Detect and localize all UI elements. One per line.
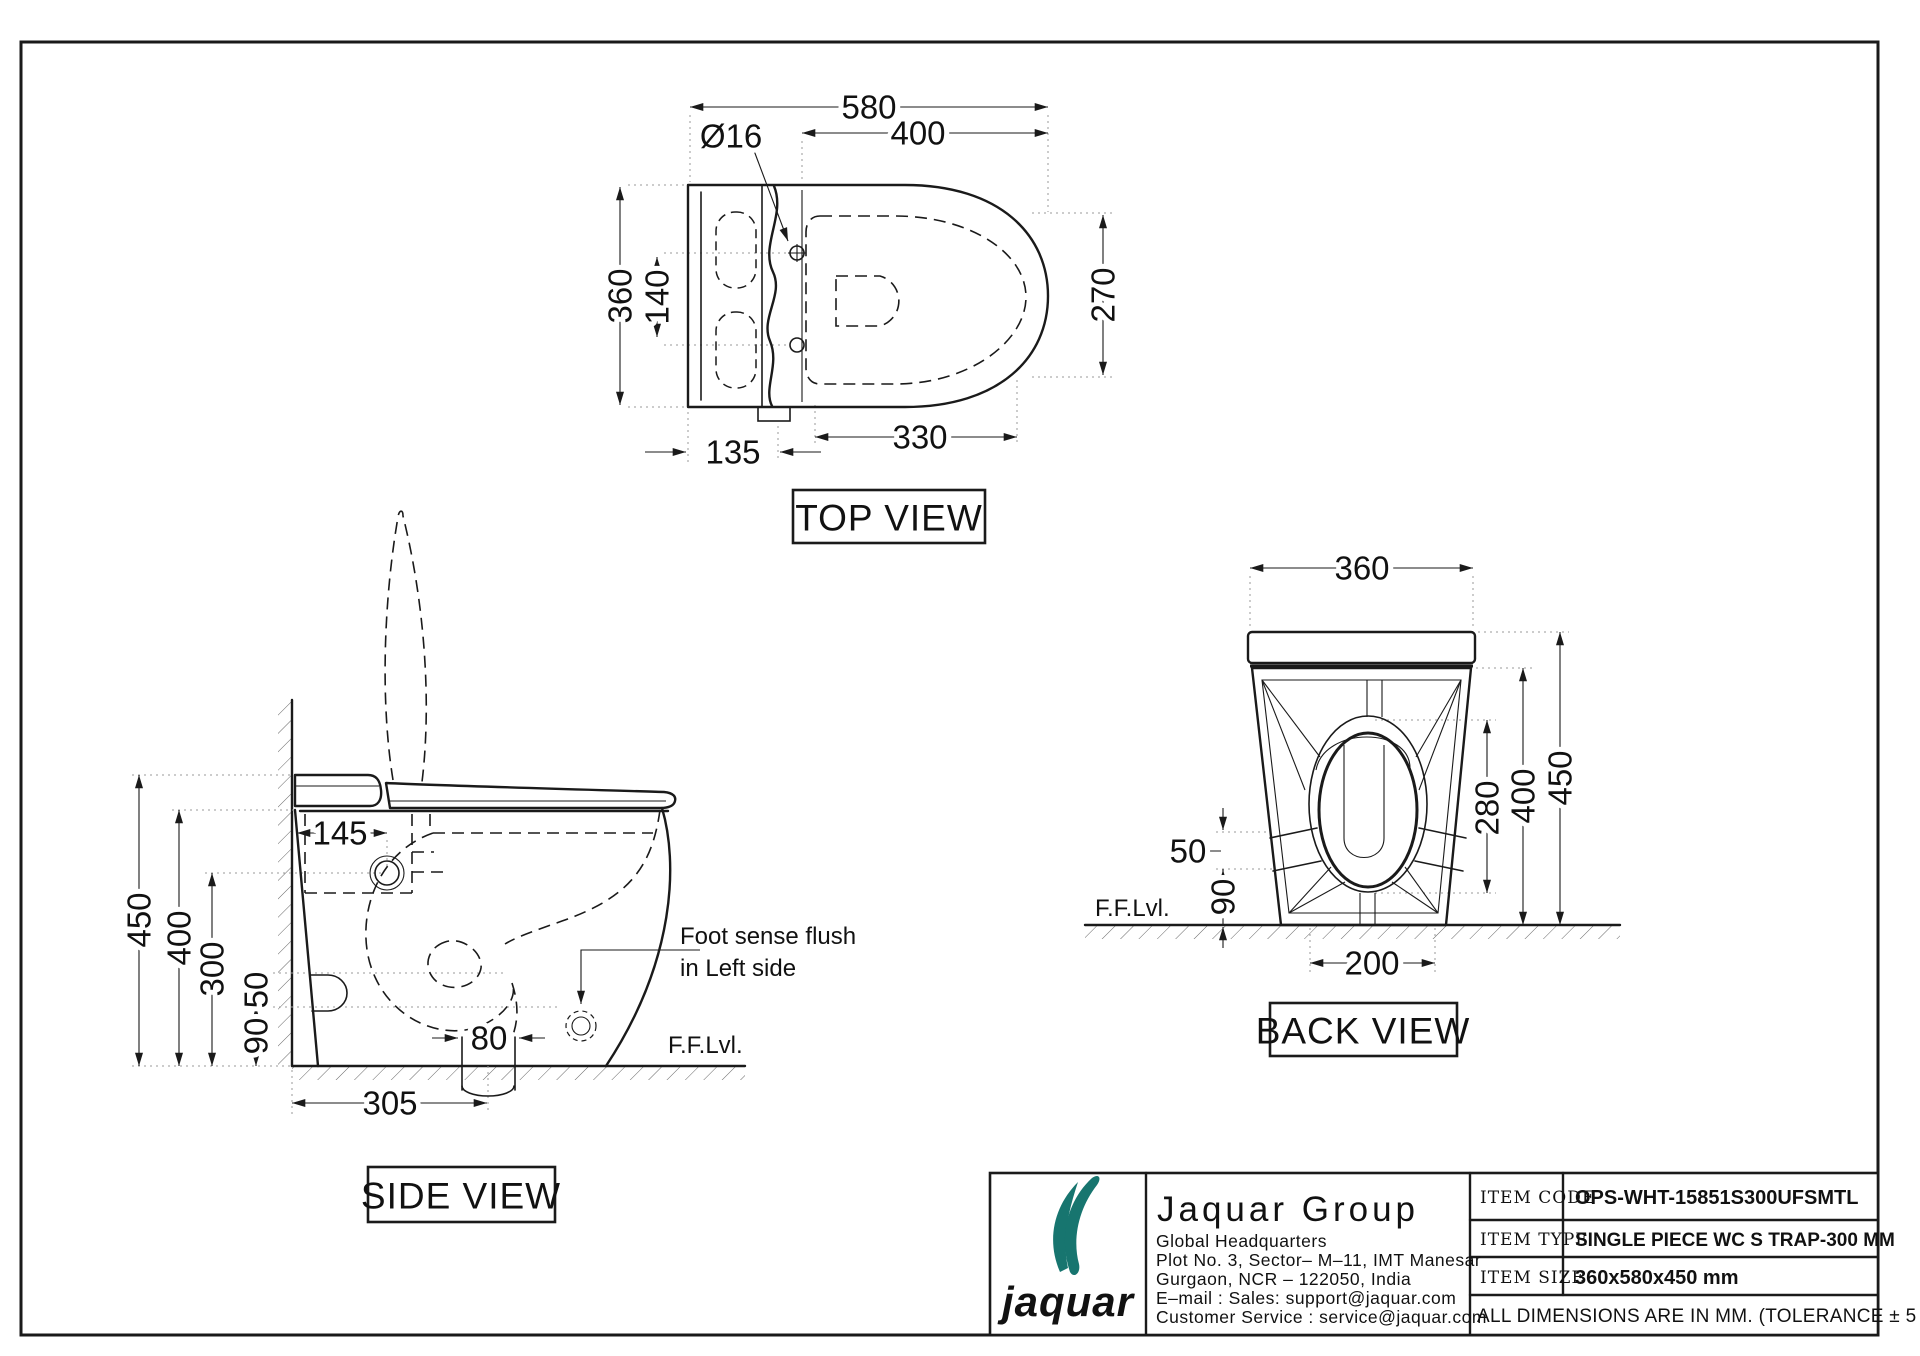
foot-sensor-inner <box>572 1017 590 1035</box>
dim-top-bowl-length: 330 <box>892 419 947 456</box>
dim-back-foot-width: 200 <box>1344 945 1399 982</box>
side-view-label: SIDE VIEW <box>361 1176 561 1217</box>
item-type-value: SINGLE PIECE WC S TRAP-300 MM <box>1575 1230 1895 1251</box>
sheet-border <box>21 42 1878 1335</box>
floor-level-label-back: F.F.Lvl. <box>1095 895 1170 922</box>
side-view-wall-floor <box>278 700 745 1080</box>
tank-slot-1 <box>716 212 756 288</box>
dim-back-body-height: 400 <box>1505 768 1542 823</box>
tank-lid-back <box>1248 632 1475 663</box>
back-view-dimension-lines <box>1204 568 1560 963</box>
item-size-value: 360x580x450 mm <box>1575 1267 1738 1289</box>
bowl-back-inner <box>1319 733 1417 887</box>
top-view-label: TOP VIEW <box>795 498 983 539</box>
dim-side-outlet: 80 <box>471 1020 508 1057</box>
floor-level-label-side: F.F.Lvl. <box>668 1032 743 1059</box>
tank-front-curve <box>768 186 778 406</box>
technical-drawing-svg: 580 400 Ø16 360 140 270 330 135 TOP VIEW <box>0 0 1920 1356</box>
jaquar-logo-wordmark: jaquar <box>997 1278 1136 1325</box>
seat-opening-hidden <box>806 216 1026 384</box>
back-view-label: BACK VIEW <box>1256 1011 1471 1052</box>
foot-sense-note-line2: in Left side <box>680 955 796 982</box>
seat-closed <box>386 783 675 808</box>
dim-top-holes-cc: 140 <box>639 269 676 324</box>
foot-sensor-outer <box>566 1011 596 1041</box>
dim-side-seat-height: 400 <box>161 910 198 965</box>
dim-side-base-height: 90 <box>238 1018 275 1055</box>
dim-top-overall-length: 580 <box>841 89 896 126</box>
address-line-1: Global Headquarters <box>1156 1231 1327 1251</box>
trap-channel <box>1344 745 1384 858</box>
address-line-4: E–mail : Sales: support@jaquar.com <box>1156 1288 1456 1308</box>
top-view-dimension-lines <box>620 107 1103 452</box>
body-inner-outline <box>1262 680 1461 913</box>
side-view-geometry <box>295 511 700 1096</box>
foot-sense-note-line1: Foot sense flush <box>680 923 856 950</box>
dim-top-hole-dia: Ø16 <box>700 118 762 155</box>
dim-back-base-height: 90 <box>1205 879 1242 916</box>
tank-slot-2 <box>716 312 756 388</box>
trap-hidden-lines <box>366 810 660 1038</box>
back-view-floor <box>1085 925 1620 939</box>
side-view: 450 400 300 50 90 145 80 305 F.F.Lvl. Fo… <box>121 511 857 1222</box>
dim-top-bowl-width: 270 <box>1085 267 1122 322</box>
wc-outline-plan <box>688 185 1048 407</box>
dim-back-width: 360 <box>1334 550 1389 587</box>
tank-lid-side <box>295 775 381 806</box>
hole-leader-line <box>753 148 788 241</box>
dim-back-bowl-height: 280 <box>1469 780 1506 835</box>
top-view-geometry <box>688 185 1048 421</box>
item-type-label: ITEM TYPE <box>1480 1230 1589 1250</box>
item-size-label: ITEM SIZE <box>1480 1268 1585 1288</box>
drawing-sheet: 580 400 Ø16 360 140 270 330 135 TOP VIEW <box>0 0 1920 1356</box>
item-code-value: OPS-WHT-15851S300UFSMTL <box>1575 1187 1858 1209</box>
back-view-geometry <box>1248 632 1475 925</box>
dim-side-tank-inner: 145 <box>312 815 367 852</box>
tolerance-note: ALL DIMENSIONS ARE IN MM. (TOLERANCE ± 5… <box>1477 1306 1920 1327</box>
dim-side-band-height: 50 <box>238 972 275 1009</box>
dim-side-inlet-height: 300 <box>194 941 231 996</box>
lid-raised-hidden <box>385 511 426 782</box>
body-front-edge <box>606 808 670 1066</box>
dim-back-band-height: 50 <box>1170 833 1207 870</box>
dim-back-total-height: 450 <box>1542 750 1579 805</box>
address-line-2: Plot No. 3, Sector– M–11, IMT Manesar <box>1156 1250 1481 1270</box>
top-view: 580 400 Ø16 360 140 270 330 135 TOP VIEW <box>602 89 1122 544</box>
address-line-5: Customer Service : service@jaquar.com <box>1156 1307 1487 1327</box>
hinge-tab <box>758 407 790 421</box>
supply-notch <box>311 975 347 1011</box>
bowl-back-outer <box>1309 716 1427 892</box>
address-line-3: Gurgaon, NCR – 122050, India <box>1156 1269 1411 1289</box>
company-name: Jaquar Group <box>1157 1190 1419 1229</box>
dim-top-width: 360 <box>602 268 639 323</box>
mount-bands <box>1270 828 1466 871</box>
back-view: 360 280 400 450 50 90 200 F.F.Lvl. BACK … <box>1085 550 1620 1057</box>
dim-side-trap: 305 <box>362 1085 417 1122</box>
bowl-rim-arc <box>1316 737 1410 770</box>
dim-top-seat-length: 400 <box>890 115 945 152</box>
flush-area-hidden <box>836 276 899 326</box>
dim-side-total-height: 450 <box>121 892 158 947</box>
title-block: jaquar Jaquar Group Global Headquarters … <box>990 1173 1920 1335</box>
dim-top-tank-depth: 135 <box>705 434 760 471</box>
